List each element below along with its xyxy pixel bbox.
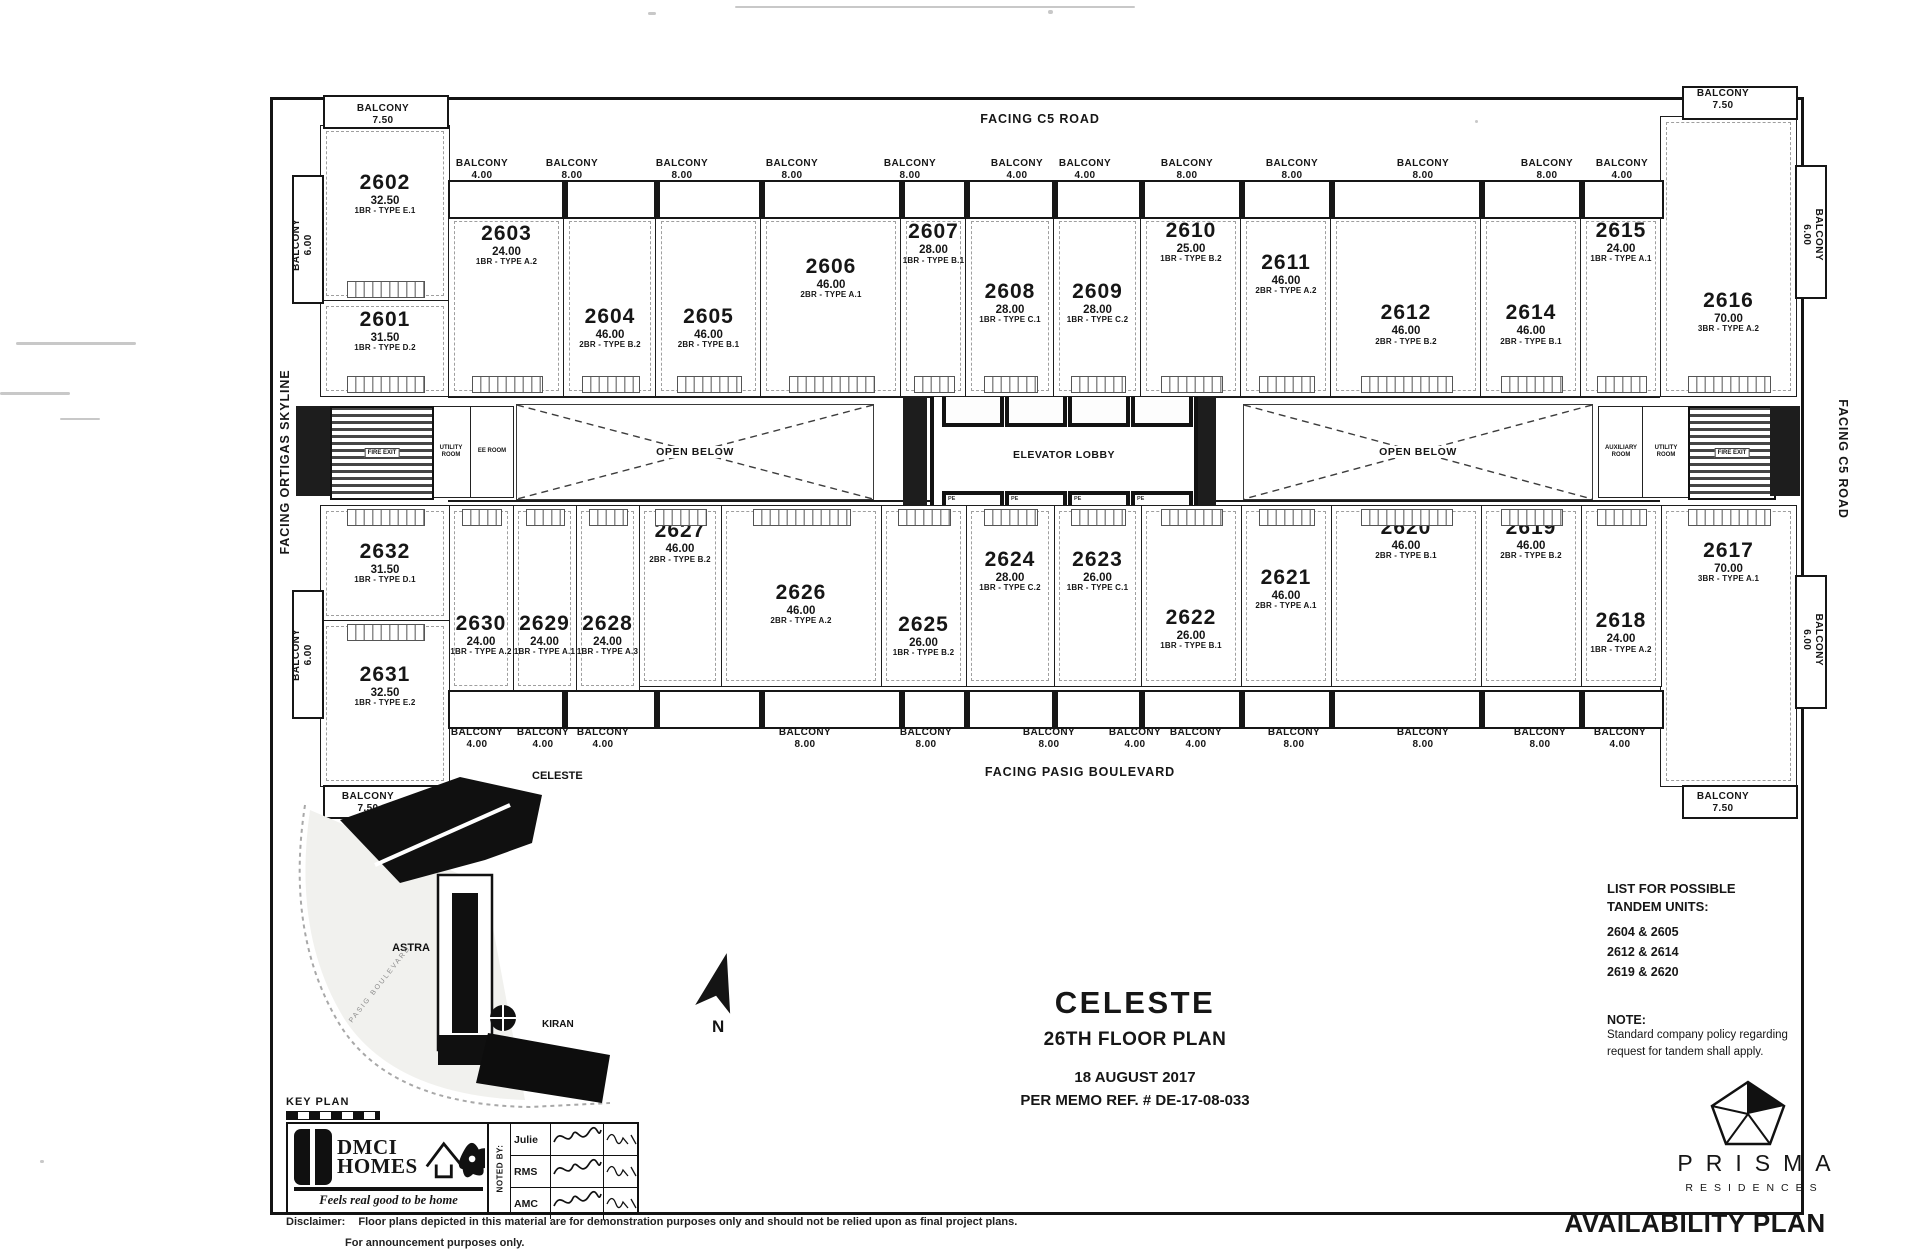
unit-fixture-detail [655,509,706,526]
unit-area-sqm: 25.00 [1141,243,1241,255]
noted-by-name: RMS [511,1156,550,1187]
balcony-dimension-value: 8.00 [1260,170,1324,182]
unit-cell-2620: 262046.002BR - TYPE B.1 [1330,505,1482,687]
unit-label-stack: 262646.002BR - TYPE A.2 [721,582,881,626]
balcony-dimension-value: 8.00 [1017,739,1081,751]
disclaimer-label: Disclaimer: [286,1216,345,1228]
balcony-word: BALCONY [540,158,604,170]
unit-cell-2610: 261025.001BR - TYPE B.2 [1140,215,1242,397]
balcony-dimension-label: BALCONY7.50 [1691,88,1755,112]
balcony-word: BALCONY [894,727,958,739]
elevator-cab-label: PE [948,496,955,502]
balcony-word: BALCONY [571,727,635,739]
unit-fixture-detail [984,376,1039,393]
dmci-logo-row: DMCI HOMES [288,1124,489,1185]
balcony-dimension-value: 4.00 [1588,739,1652,751]
column-marker [899,690,905,729]
tandem-pair: 2604 & 2605 [1607,925,1847,939]
unit-fixture-detail [347,281,426,298]
unit-area-sqm: 24.00 [1581,243,1661,255]
unit-cell-2630: 263024.001BR - TYPE A.2 [448,505,514,692]
unit-fixture-detail [526,509,566,526]
unit-type: 1BR - TYPE A.2 [449,258,564,266]
balcony-dimension-label: BALCONY6.00 [291,213,315,277]
unit-number: 2607 [901,221,966,243]
balcony-word: BALCONY [351,103,415,115]
tandem-title-line1: LIST FOR POSSIBLE [1607,880,1847,898]
scan-artifact [1048,10,1053,14]
unit-fixture-detail [347,624,426,641]
unit-cell-2607: 260728.001BR - TYPE B.1 [900,215,967,397]
facing-label-top: FACING C5 ROAD [940,112,1140,126]
unit-type: 1BR - TYPE A.1 [1581,255,1661,263]
balcony-word: BALCONY [1053,158,1117,170]
column-marker [562,180,568,219]
scan-artifact [40,1160,44,1163]
column-marker [1052,180,1058,219]
dmci-house-flower-icon [423,1129,485,1185]
date-scribble [603,1156,638,1187]
unit-type: 1BR - TYPE B.1 [901,257,966,265]
balcony-word: BALCONY [1017,727,1081,739]
balcony-dimension-value: 4.00 [571,739,635,751]
tandem-title-line2: TANDEM UNITS: [1607,898,1847,916]
prisma-residences-label: RESIDENCES [1640,1182,1862,1194]
unit-label-stack: 260324.001BR - TYPE A.2 [449,223,564,267]
balcony-word: BALCONY [1103,727,1167,739]
unit-number: 2609 [1054,281,1141,303]
unit-type: 1BR - TYPE C.2 [1054,316,1141,324]
unit-fixture-detail [1161,509,1223,526]
tandem-units-panel: LIST FOR POSSIBLE TANDEM UNITS: 2604 & 2… [1607,880,1847,1060]
unit-number: 2615 [1581,220,1661,242]
balcony-dimension-label: BALCONY4.00 [450,158,514,182]
balcony-word: BALCONY [1812,203,1824,267]
unit-number: 2608 [966,281,1054,303]
balcony-strip [448,690,1664,729]
unit-type: 3BR - TYPE A.2 [1661,325,1796,333]
dmci-wordmark: DMCI HOMES [337,1138,418,1177]
balcony-dimension-label: BALCONY8.00 [1155,158,1219,182]
balcony-word: BALCONY [1391,158,1455,170]
balcony-dimension-label: BALCONY4.00 [571,727,635,751]
unit-cell-2625: 262526.001BR - TYPE B.2 [880,505,967,687]
balcony-word: BALCONY [985,158,1049,170]
unit-fixture-detail [589,509,629,526]
unit-type: 2BR - TYPE B.2 [639,556,721,564]
balcony-dimension-label: BALCONY4.00 [1053,158,1117,182]
unit-cell-2609: 260928.001BR - TYPE C.2 [1053,215,1142,397]
unit-area-sqm: 31.50 [321,564,449,576]
column-marker [759,690,765,729]
column-marker [1139,690,1145,729]
balcony-dimension-label: BALCONY8.00 [1262,727,1326,751]
balcony-word: BALCONY [773,727,837,739]
unit-label-stack: 262924.001BR - TYPE A.1 [513,613,576,657]
unit-number: 2612 [1331,302,1481,324]
column-marker [1052,690,1058,729]
balcony-dimension-value: 8.00 [1155,170,1219,182]
balcony-dimension-label: BALCONY8.00 [878,158,942,182]
unit-cell-2606: 260646.002BR - TYPE A.1 [760,215,902,397]
unit-cell-2619: 261946.002BR - TYPE B.2 [1480,505,1582,687]
unit-label-stack: 260546.002BR - TYPE B.1 [656,306,761,350]
balcony-word: BALCONY [291,213,303,277]
unit-type: 2BR - TYPE A.1 [1241,602,1331,610]
balcony-dimension-value: 4.00 [1590,170,1654,182]
unit-type: 2BR - TYPE A.2 [721,617,881,625]
column-marker [1239,180,1245,219]
column-marker [654,180,660,219]
unit-area-sqm: 24.00 [1581,633,1661,645]
unit-fixture-detail [1259,376,1315,393]
unit-fixture-detail [1501,376,1563,393]
unit-area-sqm: 70.00 [1661,563,1796,575]
unit-type: 1BR - TYPE E.2 [321,699,449,707]
facing-label-left: FACING ORTIGAS SKYLINE [278,337,292,587]
unit-label-stack: 260131.501BR - TYPE D.2 [321,309,449,353]
balcony-dimension-label: BALCONY8.00 [1391,158,1455,182]
unit-type: 1BR - TYPE E.1 [321,207,449,215]
unit-number: 2611 [1241,252,1331,274]
unit-number: 2614 [1481,302,1581,324]
service-room: UTILITY ROOM [430,406,472,498]
unit-cell-2608: 260828.001BR - TYPE C.1 [965,215,1055,397]
unit-fixture-detail [1688,376,1771,393]
balcony-dimension-value: 4.00 [1164,739,1228,751]
unit-label-stack: 260928.001BR - TYPE C.2 [1054,281,1141,325]
balcony-dimension-label: BALCONY6.00 [1800,608,1824,672]
unit-number: 2625 [881,614,966,636]
balcony-dimension-label: BALCONY7.50 [1691,791,1755,815]
service-room: AUXILIARY ROOM [1598,406,1644,498]
balcony-dimension-value: 4.00 [1103,739,1167,751]
unit-number: 2623 [1054,549,1141,571]
unit-number: 2626 [721,582,881,604]
unit-label-stack: 261025.001BR - TYPE B.2 [1141,220,1241,264]
balcony-word: BALCONY [1691,791,1755,803]
unit-cell-2624: 262428.001BR - TYPE C.2 [965,505,1055,687]
unit-label-stack: 262746.002BR - TYPE B.2 [639,520,721,564]
disclaimer-text: Floor plans depicted in this material ar… [358,1216,1017,1228]
unit-number: 2601 [321,309,449,331]
balcony-word: BALCONY [1515,158,1579,170]
balcony-dimension-label: BALCONY8.00 [1391,727,1455,751]
column-marker [1329,180,1335,219]
unit-fixture-detail [914,376,955,393]
unit-cell-2617: 261770.003BR - TYPE A.1 [1660,505,1797,787]
balcony-strip [448,180,1664,219]
dmci-tagline: Feels real good to be home [288,1193,489,1208]
key-plan-celeste-label: CELESTE [532,770,583,782]
unit-fixture-detail [1361,376,1453,393]
unit-fixture-detail [1597,509,1647,526]
unit-type: 1BR - TYPE A.3 [576,648,639,656]
balcony-dimension-value: 8.00 [878,170,942,182]
floor-plan-title: 26TH FLOOR PLAN [985,1029,1285,1051]
unit-fixture-detail [898,509,951,526]
unit-fixture-detail [347,376,426,393]
unit-type: 1BR - TYPE D.1 [321,576,449,584]
unit-area-sqm: 31.50 [321,332,449,344]
balcony-word: BALCONY [1164,727,1228,739]
unit-cell-2623: 262326.001BR - TYPE C.1 [1053,505,1142,687]
service-room-label: AUXILIARY ROOM [1599,407,1643,497]
unit-label-stack: 262146.002BR - TYPE A.1 [1241,567,1331,611]
unit-fixture-detail [582,376,639,393]
unit-number: 2622 [1141,607,1241,629]
balcony-dimension-value: 6.00 [303,623,315,687]
unit-cell-2612: 261246.002BR - TYPE B.2 [1330,215,1482,397]
balcony-dimension-label: BALCONY4.00 [1164,727,1228,751]
balcony-dimension-value: 7.50 [1691,100,1755,112]
balcony-dimension-label: BALCONY8.00 [1017,727,1081,751]
balcony-word: BALCONY [760,158,824,170]
unit-label-stack: 262428.001BR - TYPE C.2 [966,549,1054,593]
noted-by-name: Julie [511,1124,550,1155]
balcony-dimension-value: 6.00 [303,213,315,277]
balcony-dimension-label: BALCONY4.00 [511,727,575,751]
unit-type: 1BR - TYPE B.2 [881,649,966,657]
balcony-word: BALCONY [650,158,714,170]
balcony-dimension-value: 8.00 [650,170,714,182]
unit-label-stack: 260232.501BR - TYPE E.1 [321,172,449,216]
scan-artifact [0,392,70,395]
key-plan-astra-core [452,893,478,1033]
balcony-dimension-value: 8.00 [760,170,824,182]
balcony-word: BALCONY [1155,158,1219,170]
column-marker [964,690,970,729]
balcony-word: BALCONY [1508,727,1572,739]
unit-fixture-detail [462,509,502,526]
balcony-dimension-value: 8.00 [540,170,604,182]
key-plan-scale-bar [286,1111,380,1120]
unit-fixture-detail [1071,376,1125,393]
balcony-word: BALCONY [1391,727,1455,739]
unit-number: 2618 [1581,610,1661,632]
unit-label-stack: 262226.001BR - TYPE B.1 [1141,607,1241,651]
service-room-label: UTILITY ROOM [431,407,471,497]
unit-type: 1BR - TYPE A.2 [449,648,513,656]
balcony-dimension-label: BALCONY6.00 [1800,203,1824,267]
unit-number: 2605 [656,306,761,328]
balcony-dimension-label: BALCONY8.00 [1260,158,1324,182]
balcony-word: BALCONY [450,158,514,170]
unit-type: 2BR - TYPE B.2 [1331,338,1481,346]
unit-area-sqm: 46.00 [1481,325,1581,337]
balcony-dimension-value: 4.00 [445,739,509,751]
unit-label-stack: 260446.002BR - TYPE B.2 [564,306,656,350]
balcony-dimension-label: BALCONY6.00 [291,623,315,687]
unit-cell-2622: 262226.001BR - TYPE B.1 [1140,505,1242,687]
service-room-label: UTILITY ROOM [1643,407,1689,497]
unit-fixture-detail [1501,509,1563,526]
wall-core-block [296,406,330,496]
unit-cell-2626: 262646.002BR - TYPE A.2 [720,505,882,687]
unit-type: 1BR - TYPE B.1 [1141,642,1241,650]
key-plan-sketch: CELESTE ASTRA KIRAN PASIG BOULEVARD [280,765,720,1110]
signature-scribble [550,1124,603,1155]
unit-type: 2BR - TYPE B.2 [564,341,656,349]
column-marker [964,180,970,219]
unit-number: 2628 [576,613,639,635]
noted-by-name: AMC [511,1188,550,1219]
balcony-word: BALCONY [445,727,509,739]
unit-fixture-detail [1361,509,1453,526]
note-text-line1: Standard company policy regarding [1607,1027,1847,1044]
unit-label-stack: 261824.001BR - TYPE A.2 [1581,610,1661,654]
unit-fixture-detail [1688,509,1771,526]
unit-type: 1BR - TYPE C.2 [966,584,1054,592]
elevator-cab-label: PE [1074,496,1081,502]
balcony-dimension-value: 8.00 [1391,739,1455,751]
unit-area-sqm: 46.00 [721,605,881,617]
unit-area-sqm: 28.00 [901,244,966,256]
unit-label-stack: 261670.003BR - TYPE A.2 [1661,290,1796,334]
date-scribble [603,1124,638,1155]
unit-cell-2605: 260546.002BR - TYPE B.1 [655,215,762,397]
facing-label-bottom: FACING PASIG BOULEVARD [920,765,1240,779]
column-marker [899,180,905,219]
dmci-logo-icon [294,1129,332,1185]
balcony-dimension-label: BALCONY8.00 [650,158,714,182]
column-marker [654,690,660,729]
column-marker [759,180,765,219]
balcony-dimension-value: 8.00 [1508,739,1572,751]
unit-type: 2BR - TYPE B.1 [656,341,761,349]
balcony-dimension-value: 4.00 [450,170,514,182]
unit-number: 2602 [321,172,449,194]
service-room: EE ROOM [470,406,514,498]
fire-exit-label: FIRE EXIT [365,448,400,458]
unit-type: 1BR - TYPE D.2 [321,344,449,352]
open-below-label: OPEN BELOW [651,446,739,458]
memo-reference: PER MEMO REF. # DE-17-08-033 [985,1092,1285,1109]
unit-label-stack: 263231.501BR - TYPE D.1 [321,541,449,585]
facing-label-right: FACING C5 ROAD [1836,334,1850,584]
prisma-logo-icon [1708,1080,1788,1148]
noted-by-rows: JulieRMSAMC [511,1124,638,1212]
open-below-area: OPEN BELOW [516,404,874,500]
key-plan-kiran-label: KIRAN [542,1019,574,1030]
unit-label-stack: 260828.001BR - TYPE C.1 [966,281,1054,325]
scan-artifact [1475,120,1478,123]
unit-number: 2606 [761,256,901,278]
unit-cell-2611: 261146.002BR - TYPE A.2 [1240,215,1332,397]
dmci-underline [294,1187,483,1191]
service-room: UTILITY ROOM [1642,406,1690,498]
balcony-word: BALCONY [511,727,575,739]
unit-cell-2629: 262924.001BR - TYPE A.1 [512,505,577,692]
elevator-cab-label: PE [1137,496,1144,502]
balcony-dimension-label: BALCONY7.50 [351,103,415,127]
balcony-dimension-label: BALCONY4.00 [1103,727,1167,751]
balcony-dimension-value: 6.00 [1800,203,1812,267]
open-below-area: OPEN BELOW [1243,404,1593,500]
unit-type: 1BR - TYPE B.2 [1141,255,1241,263]
unit-number: 2610 [1141,220,1241,242]
balcony-dimension-value: 8.00 [773,739,837,751]
open-below-label: OPEN BELOW [1374,446,1462,458]
signature-scribble [550,1156,603,1187]
plan-date: 18 AUGUST 2017 [985,1069,1285,1086]
title-block: CELESTE 26TH FLOOR PLAN 18 AUGUST 2017 P… [985,985,1285,1109]
balcony-dimension-label: BALCONY8.00 [1515,158,1579,182]
unit-fixture-detail [677,376,742,393]
scanned-floor-plan-sheet: { "labels": { "balcony_word": "BALCONY",… [0,0,1920,1258]
unit-area-sqm: 46.00 [761,279,901,291]
unit-number: 2621 [1241,567,1331,589]
north-arrow-shape [695,949,744,1014]
unit-type: 1BR - TYPE A.1 [513,648,576,656]
unit-fixture-detail [984,509,1039,526]
balcony-dimension-label: BALCONY8.00 [540,158,604,182]
noted-by-label: NOTED BY: [495,1144,504,1192]
tandem-pair: 2612 & 2614 [1607,945,1847,959]
column-marker [1479,180,1485,219]
balcony-dimension-value: 8.00 [1262,739,1326,751]
unit-fixture-detail [1597,376,1647,393]
unit-number: 2616 [1661,290,1796,312]
balcony-word: BALCONY [1812,608,1824,672]
balcony-dimension-value: 6.00 [1800,608,1812,672]
unit-cell-2631: 263132.501BR - TYPE E.2 [320,620,450,787]
disclaimer-line1: Disclaimer: Floor plans depicted in this… [286,1216,1017,1228]
unit-label-stack: 261524.001BR - TYPE A.1 [1581,220,1661,264]
balcony-dimension-value: 4.00 [985,170,1049,182]
unit-type: 2BR - TYPE B.1 [1331,552,1481,560]
unit-fixture-detail [1259,509,1315,526]
unit-type: 2BR - TYPE B.1 [1481,338,1581,346]
unit-number: 2629 [513,613,576,635]
unit-type: 3BR - TYPE A.1 [1661,575,1796,583]
tandem-pair: 2619 & 2620 [1607,965,1847,979]
balcony-dimension-value: 4.00 [1053,170,1117,182]
balcony-word: BALCONY [1262,727,1326,739]
column-marker [1479,690,1485,729]
unit-area-sqm: 46.00 [1331,325,1481,337]
wall-core-block [1770,406,1800,496]
unit-fixture-detail [789,376,875,393]
service-room-label: EE ROOM [471,407,513,497]
column-marker [1239,690,1245,729]
unit-cell-2621: 262146.002BR - TYPE A.1 [1240,505,1332,687]
unit-type: 1BR - TYPE A.2 [1581,646,1661,654]
unit-label-stack: 262824.001BR - TYPE A.3 [576,613,639,657]
unit-label-stack: 262326.001BR - TYPE C.1 [1054,549,1141,593]
balcony-dimension-label: BALCONY8.00 [1508,727,1572,751]
unit-number: 2632 [321,541,449,563]
unit-label-stack: 260646.002BR - TYPE A.1 [761,256,901,300]
unit-label-stack: 260728.001BR - TYPE B.1 [901,221,966,265]
noted-by-table: NOTED BY: JulieRMSAMC [487,1122,639,1214]
column-marker [1329,690,1335,729]
balcony-word: BALCONY [1691,88,1755,100]
unit-fixture-detail [347,509,426,526]
unit-cell-2603: 260324.001BR - TYPE A.2 [448,215,565,397]
balcony-dimension-value: 7.50 [1691,803,1755,815]
unit-cell-2614: 261446.002BR - TYPE B.1 [1480,215,1582,397]
unit-cell-2604: 260446.002BR - TYPE B.2 [563,215,657,397]
unit-number: 2603 [449,223,564,245]
unit-label-stack: 263132.501BR - TYPE E.2 [321,664,449,708]
noted-by-row: AMC [511,1188,638,1219]
balcony-dimension-value: 8.00 [1515,170,1579,182]
column-marker [1579,180,1585,219]
disclaimer-line2: For announcement purposes only. [345,1237,524,1249]
balcony-dimension-label: BALCONY8.00 [760,158,824,182]
unit-fixture-detail [472,376,543,393]
